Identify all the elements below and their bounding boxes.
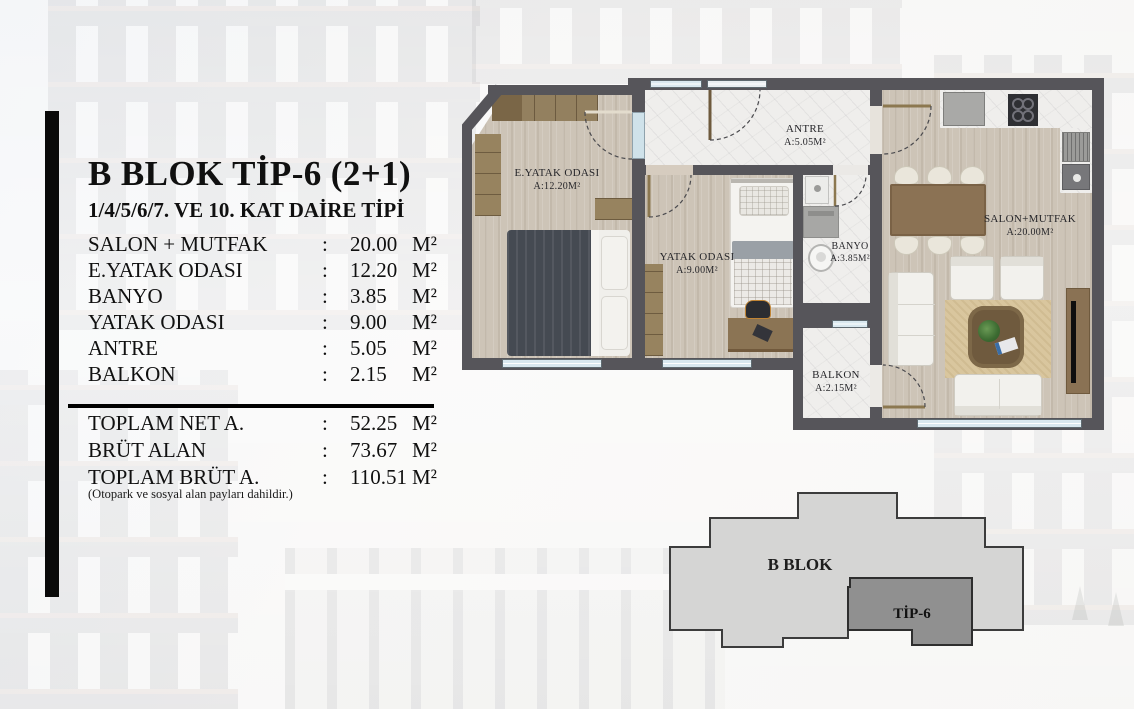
room-row: YATAK ODASI:9.00M² — [88, 309, 508, 335]
room-label: E.YATAK ODASI — [88, 257, 322, 283]
window — [832, 320, 868, 328]
colon: : — [322, 309, 336, 335]
totals-note: (Otopark ve sosyal alan payları dahildir… — [88, 487, 508, 502]
door-opening-living — [870, 106, 882, 154]
entrance-transom — [707, 80, 767, 88]
colon: : — [322, 437, 336, 464]
room-value: 3.85 — [336, 283, 412, 309]
double-bed — [507, 230, 630, 356]
colon: : — [322, 257, 336, 283]
dining-chair — [894, 166, 919, 185]
kitchen-sink — [1062, 164, 1090, 190]
coffee-table — [968, 306, 1024, 368]
total-label: TOPLAM NET A. — [88, 410, 322, 437]
refrigerator — [943, 92, 985, 126]
side-accent-bar — [45, 111, 59, 597]
room-value: 2.15 — [336, 361, 412, 387]
room-row: ANTRE:5.05M² — [88, 335, 508, 361]
room-row: SALON + MUTFAK:20.00M² — [88, 231, 508, 257]
room-label: BALKON — [88, 361, 322, 387]
wall — [462, 126, 472, 370]
room-label-master: E.YATAK ODASIA:12.20M² — [492, 166, 622, 193]
totals-divider-line — [68, 404, 434, 408]
wall — [1092, 78, 1104, 430]
room-label-entry: ANTREA:5.05M² — [762, 122, 848, 149]
single-bed — [730, 178, 796, 308]
shower — [805, 176, 829, 204]
plant — [978, 320, 1000, 342]
colon: : — [322, 410, 336, 437]
total-row: TOPLAM NET A.:52.25M² — [88, 410, 508, 437]
room-row: BANYO:3.85M² — [88, 283, 508, 309]
total-unit: M² — [412, 437, 508, 464]
door-opening-balcony — [870, 365, 882, 407]
dining-chair — [960, 166, 985, 185]
room-label: SALON + MUTFAK — [88, 231, 322, 257]
room-label-bathroom: BANYOA:3.85M² — [824, 240, 876, 265]
door-opening-bedroom — [646, 165, 693, 175]
tv-unit — [1066, 288, 1090, 394]
room-label-living: SALON+MUTFAKA:20.00M² — [968, 212, 1092, 239]
block-label: B BLOK — [768, 555, 833, 574]
colon: : — [322, 361, 336, 387]
room-value: 9.00 — [336, 309, 412, 335]
unit-label: TİP-6 — [893, 605, 931, 622]
door-opening-bathroom — [833, 165, 868, 175]
desk — [728, 318, 796, 352]
room-area-list: SALON + MUTFAK:20.00M² E.YATAK ODASI:12.… — [88, 231, 508, 387]
wardrobe — [645, 264, 663, 356]
room-label-bedroom: YATAK ODASIA:9.00M² — [647, 250, 747, 277]
floor-plan: E.YATAK ODASIA:12.20M² ANTREA:5.05M² YAT… — [462, 78, 1104, 430]
armchair — [950, 256, 994, 300]
room-value: 5.05 — [336, 335, 412, 361]
page-subtitle: 1/4/5/6/7. VE 10. KAT DAİRE TİPİ — [88, 198, 508, 223]
dining-chair — [927, 166, 952, 185]
colon: : — [322, 231, 336, 257]
window — [662, 359, 752, 368]
colon: : — [322, 335, 336, 361]
block-location-diagram: B BLOK TİP-6 — [660, 475, 1080, 675]
totals-list: TOPLAM NET A.:52.25M² BRÜT ALAN:73.67M² … — [88, 410, 508, 491]
window — [502, 359, 602, 368]
sofa-three-seat — [888, 272, 934, 366]
stove — [1008, 94, 1038, 126]
room-label: BANYO — [88, 283, 322, 309]
room-value: 12.20 — [336, 257, 412, 283]
total-row: BRÜT ALAN:73.67M² — [88, 437, 508, 464]
dish-rack — [1062, 132, 1090, 162]
colon: : — [322, 283, 336, 309]
page-title: B BLOK TİP-6 (2+1) — [88, 156, 508, 192]
wardrobe-section — [492, 95, 522, 121]
total-label: BRÜT ALAN — [88, 437, 322, 464]
room-label: ANTRE — [88, 335, 322, 361]
book — [995, 337, 1019, 355]
window — [917, 419, 1082, 428]
armchair — [1000, 256, 1044, 300]
room-value: 20.00 — [336, 231, 412, 257]
total-value: 73.67 — [336, 437, 412, 464]
wall — [488, 85, 632, 95]
washing-machine — [803, 206, 839, 238]
total-value: 52.25 — [336, 410, 412, 437]
room-label: YATAK ODASI — [88, 309, 322, 335]
desk-chair — [745, 300, 771, 319]
window — [650, 80, 702, 88]
wall — [793, 328, 803, 430]
cabinet — [595, 198, 632, 220]
door-opening-master — [632, 112, 645, 159]
sofa-two-seat — [954, 374, 1042, 416]
tv — [1071, 301, 1076, 383]
room-row: BALKON:2.15M² — [88, 361, 508, 387]
room-label-balcony: BALKONA:2.15M² — [803, 368, 869, 395]
room-row: E.YATAK ODASI:12.20M² — [88, 257, 508, 283]
